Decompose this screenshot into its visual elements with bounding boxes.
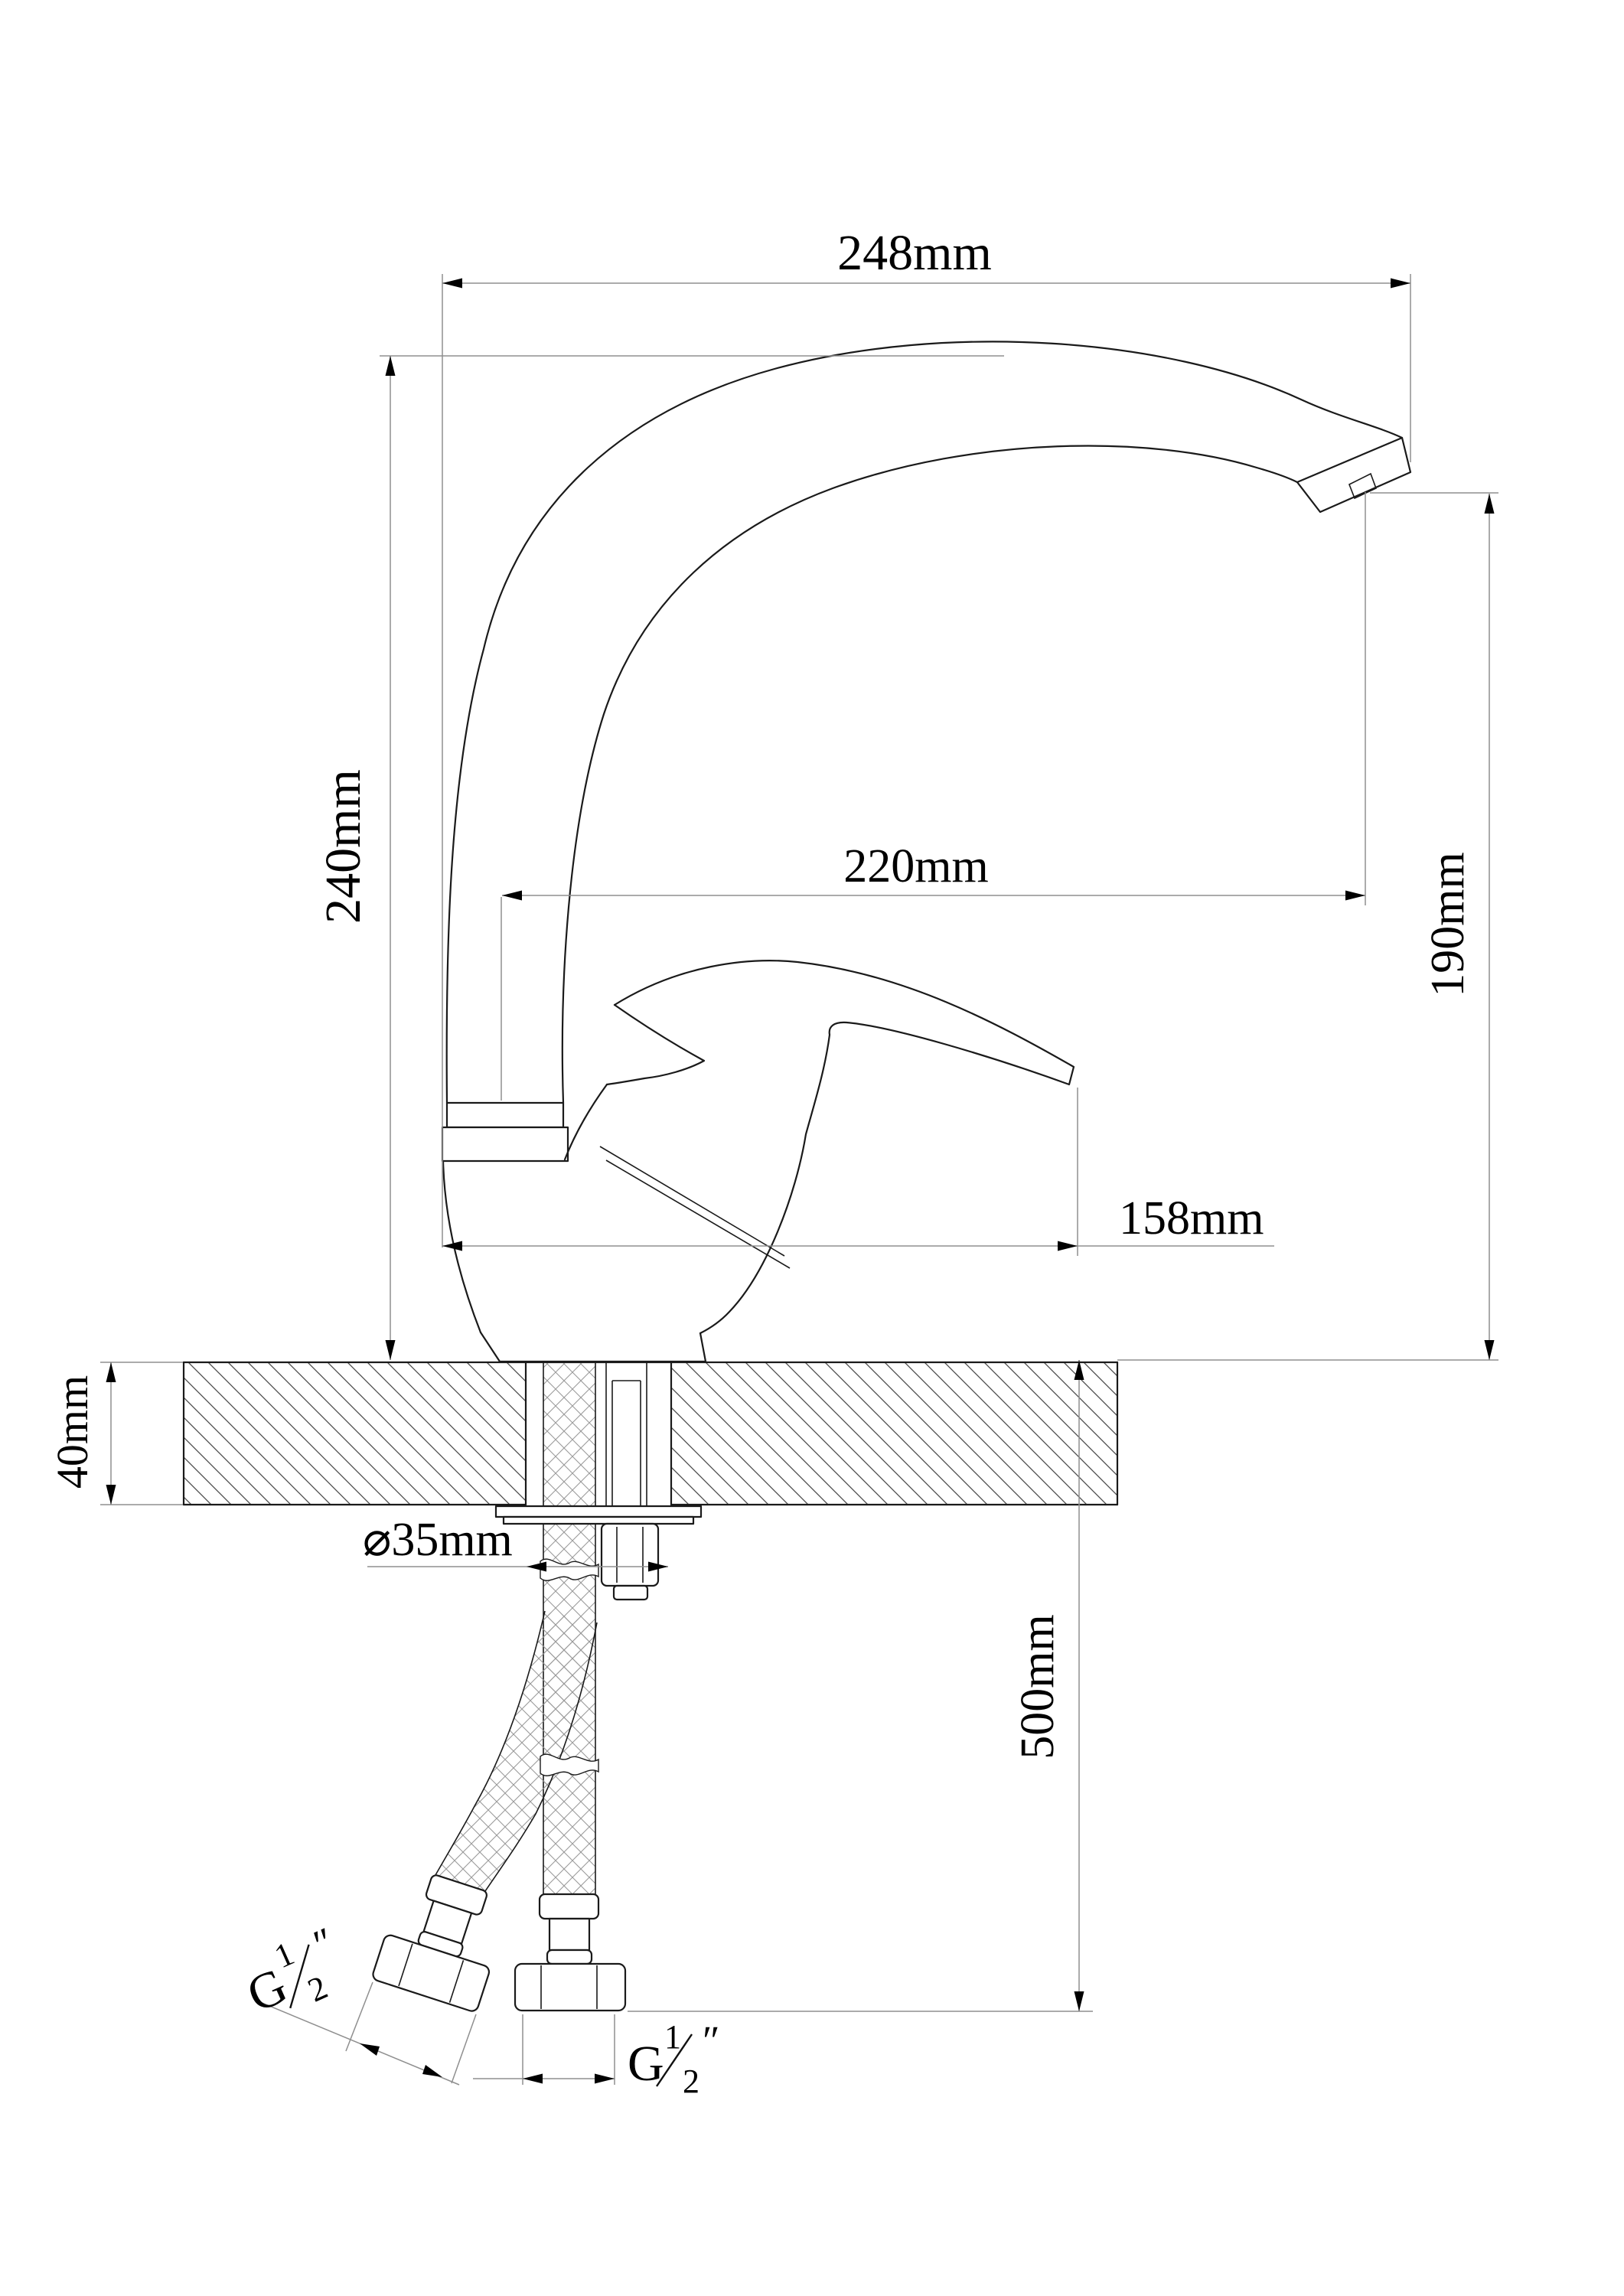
dim-240-label: 240mm [315,769,371,924]
arrowhead [106,1362,116,1382]
dim-spout-reach: 248mm [442,225,1410,1247]
arrowhead [1485,494,1495,514]
arrowhead [1391,279,1410,289]
lever-handle [615,960,1074,1333]
dim-outlet-reach: 220mm [501,492,1365,1101]
right-thread-label: G 1 2 ″ [628,2017,720,2100]
arrowhead [1485,1340,1495,1360]
swivel-collar-upper [447,1103,563,1127]
arrowhead [1075,1991,1084,2011]
shank-bore [612,1381,641,1524]
dim-220-label: 220mm [843,840,988,892]
dim-500-label: 500mm [1012,1614,1064,1759]
dim-35-label: ⌀35mm [363,1514,513,1566]
arrowhead [106,1485,116,1505]
left-hose-fitting [371,1866,513,2013]
right-fitting-collar [547,1950,592,1964]
spout-aerator [1297,438,1410,512]
swivel-collar-lower [442,1127,568,1161]
spout-outer-curve [447,341,1402,1103]
arrowhead [527,1562,546,1572]
dim-40-label: 40mm [47,1375,97,1489]
right-fitting-hex-nut [515,1964,625,2011]
thread-denominator: 2 [683,2063,699,2100]
dim-248-label: 248mm [837,225,992,281]
body-seam-band [600,1146,790,1268]
arrowhead [523,2074,543,2084]
dim-220-lines [501,492,1365,1101]
thread-denominator: 2 [302,1968,333,2010]
countertop-hatch-right [671,1363,1117,1504]
arrowhead [442,279,462,289]
arrowhead [1058,1241,1078,1251]
arrowhead [422,2065,442,2077]
drawing-sheet: 248mm 240mm 220mm 190mm 158mm 40mm [0,0,1624,2296]
flange-lip [504,1517,693,1524]
countertop-hatch-left [184,1363,526,1504]
dim-158-label: 158mm [1119,1192,1264,1244]
faucet-technical-drawing: 248mm 240mm 220mm 190mm 158mm 40mm [0,0,1624,2296]
body-shoulder [565,1084,607,1159]
dim-rightG-lines [473,2014,615,2085]
dim-body-length: 158mm [442,1088,1274,1256]
right-fitting-ferrule [540,1894,598,1919]
dim-right-thread: G 1 2 ″ [473,2014,720,2100]
arrowhead [502,891,522,901]
arrowhead [595,2074,615,2084]
dim-40-lines [100,1362,183,1505]
countertop-section [184,1362,1117,1505]
flange-plate [496,1506,701,1517]
dim-190-label: 190mm [1422,852,1474,996]
arrowhead [386,1340,396,1360]
dim-248-lines [442,274,1410,1247]
handle-skirt [607,1005,704,1084]
spout-inner-curve [563,445,1297,1103]
dim-counter-thickness: 40mm [47,1362,183,1505]
thread-numerator: 1 [664,2018,681,2056]
thread-inch-mark: ″ [703,2017,720,2063]
right-hose-fitting [515,1894,625,2011]
arrowhead [386,356,396,376]
arrowhead [360,2043,380,2056]
arrowhead [1345,891,1365,901]
mounting-nut-tail [614,1586,647,1600]
mounting-nut [602,1524,658,1586]
body-base-foot [481,1332,706,1362]
right-fitting-neck [549,1919,589,1950]
thread-inch-mark: ″ [307,1918,341,1967]
left-thread-label: G 1 2 ″ [233,1918,356,2033]
